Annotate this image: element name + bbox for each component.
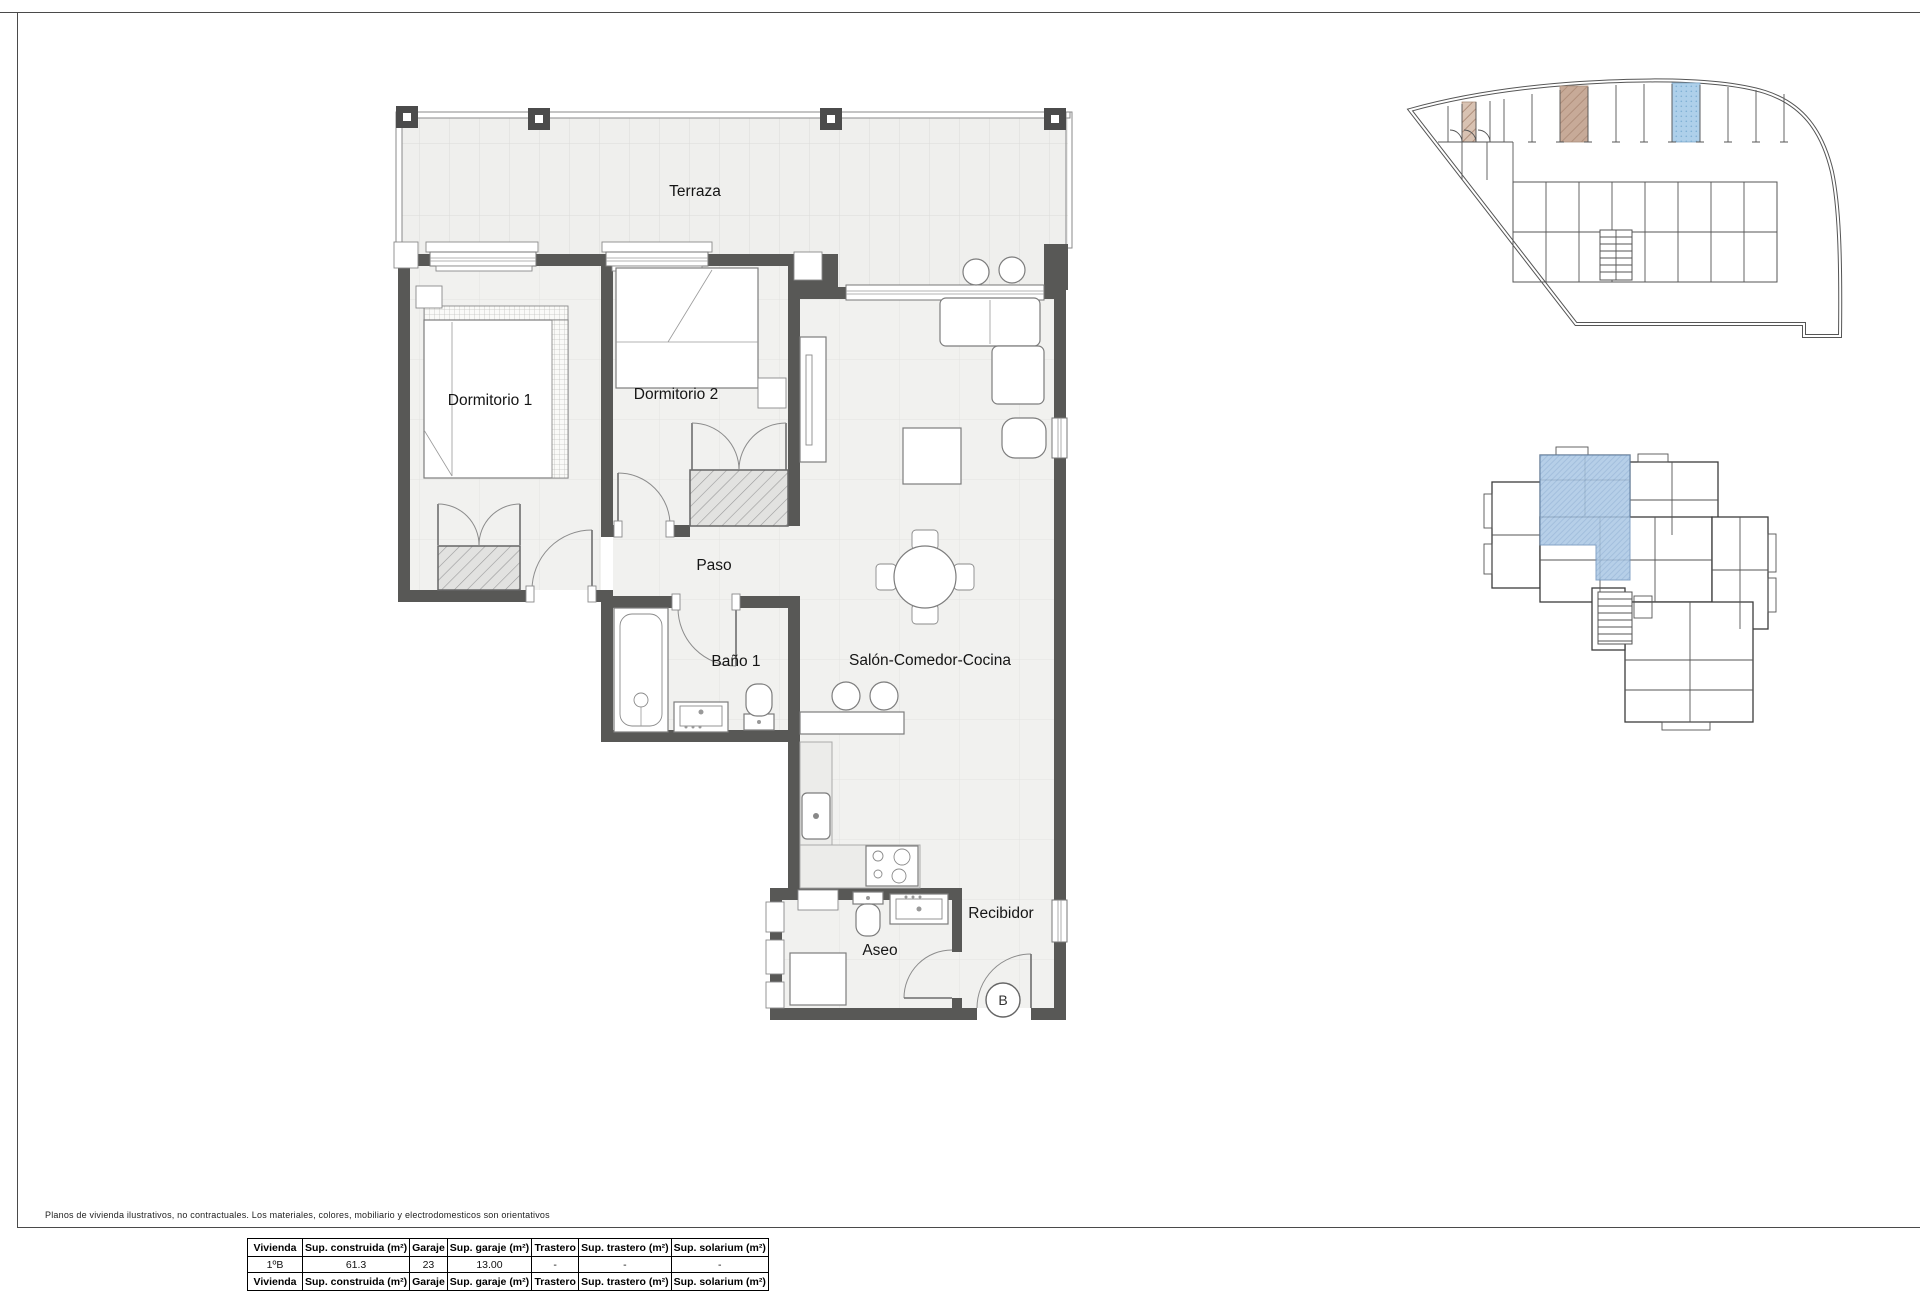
- floor-key-plan: [1484, 447, 1776, 730]
- window-right-upper: [1052, 418, 1067, 458]
- tv-cabinet: [800, 337, 826, 462]
- pouf: [999, 257, 1025, 283]
- header-sup-trastero: Sup. trastero (m²): [579, 1239, 672, 1257]
- window-dormitorio2: [602, 242, 712, 271]
- header-garaje: Garaje: [410, 1239, 448, 1257]
- sheet-frame-left: [17, 12, 18, 1227]
- window-dormitorio1: [426, 242, 538, 271]
- areas-table-header-row: Vivienda Sup. construida (m²) Garaje Sup…: [248, 1239, 769, 1257]
- header-trastero: Trastero: [532, 1239, 579, 1257]
- unit-marker-label: B: [998, 992, 1007, 1008]
- plan-sheet: B Terraza Dormitorio 1 Dormitorio 2 Paso…: [0, 0, 1920, 1280]
- window-right-lower: [1052, 900, 1067, 942]
- garage-stairs: [1600, 230, 1632, 280]
- disclaimer-text: Planos de vivienda ilustrativos, no cont…: [45, 1210, 550, 1220]
- header-sup-construida: Sup. construida (m²): [303, 1239, 410, 1257]
- cell-sup-trastero: -: [579, 1257, 672, 1273]
- terraza-label: Terraza: [669, 183, 721, 200]
- bed-dormitorio1: [416, 286, 568, 478]
- shower-tray: [790, 953, 846, 1005]
- kitchen-peninsula: [800, 712, 904, 734]
- paso-label: Paso: [696, 557, 731, 574]
- cell-vivienda: 1ºB: [248, 1257, 303, 1273]
- pouf: [963, 259, 989, 285]
- aseo-label: Aseo: [862, 942, 897, 959]
- cell-sup-garaje: 13.00: [447, 1257, 531, 1273]
- wall-niche: [766, 982, 784, 1008]
- dormitorio1-label: Dormitorio 1: [448, 392, 532, 409]
- vanity-aseo: [890, 894, 948, 924]
- corner-jamb: [394, 242, 418, 268]
- salon-label: Salón-Comedor-Cocina: [849, 652, 1011, 669]
- highlighted-garage-space: [1672, 83, 1700, 142]
- wall-niche: [766, 940, 784, 974]
- areas-table-data-row: 1ºB 61.3 23 13.00 - - -: [248, 1257, 769, 1273]
- aseo-shelf: [798, 890, 838, 910]
- main-apartment-plan: B Terraza Dormitorio 1 Dormitorio 2 Paso…: [394, 106, 1072, 1020]
- facade-step-jamb: [794, 252, 822, 280]
- floor-plan-drawing: B Terraza Dormitorio 1 Dormitorio 2 Paso…: [0, 0, 1920, 1280]
- cell-sup-solarium: -: [671, 1257, 768, 1273]
- stove: [866, 846, 918, 886]
- cell-trastero: -: [532, 1257, 579, 1273]
- armchair: [1002, 418, 1046, 458]
- coffee-table: [903, 428, 961, 484]
- stool: [870, 682, 898, 710]
- toilet-aseo: [853, 892, 883, 936]
- stool: [832, 682, 860, 710]
- unit-marker: B: [986, 983, 1020, 1017]
- header-sup-solarium: Sup. solarium (m²): [671, 1239, 768, 1257]
- header-sup-garaje: Sup. garaje (m²): [447, 1239, 531, 1257]
- highlighted-trastero: [1560, 86, 1588, 142]
- dormitorio2-label: Dormitorio 2: [634, 386, 718, 403]
- cell-sup-construida: 61.3: [303, 1257, 410, 1273]
- toilet-bano1: [744, 684, 774, 730]
- terrace-railing-left: [396, 112, 402, 252]
- cell-garaje: 23: [410, 1257, 448, 1273]
- terrace-railing-top: [398, 112, 1070, 118]
- areas-table-repeat-header-row: Vivienda Sup. construida (m²) Garaje Sup…: [248, 1273, 769, 1291]
- areas-table: Vivienda Sup. construida (m²) Garaje Sup…: [247, 1238, 769, 1291]
- sheet-frame-bottom: [17, 1227, 1920, 1228]
- dining-table: [894, 546, 956, 608]
- garage-key-plan: [1410, 80, 1840, 336]
- recibidor-label: Recibidor: [968, 905, 1033, 922]
- sheet-frame-top: [0, 12, 1920, 13]
- night-table: [758, 378, 786, 408]
- header-vivienda: Vivienda: [248, 1239, 303, 1257]
- bano1-label: Baño 1: [711, 653, 760, 670]
- vanity-bano1: [674, 702, 728, 732]
- wall-niche: [766, 902, 784, 932]
